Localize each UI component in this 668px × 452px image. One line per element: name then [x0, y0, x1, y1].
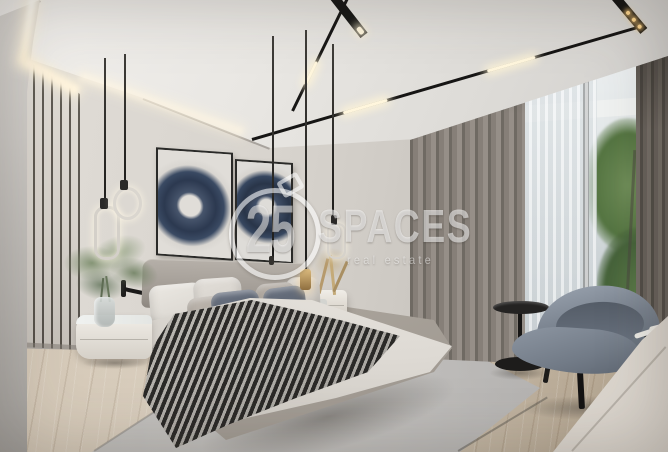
pendant-cord — [272, 36, 274, 260]
artwork-swirl — [158, 149, 231, 258]
led-spot — [631, 17, 637, 23]
led-spot — [356, 26, 365, 35]
artwork-frame-left — [156, 147, 233, 260]
oval-ring-pendant-right — [327, 223, 346, 259]
artwork-frame-right — [235, 159, 293, 264]
led-spot — [625, 10, 631, 16]
pendant-cord-tip — [269, 256, 274, 265]
bedroom-photo: 25 SPACES real estate — [0, 0, 668, 452]
gold-drop-pendant — [300, 269, 311, 290]
pendant-cord — [104, 58, 106, 208]
pendant-cap — [100, 198, 108, 209]
slat-wall — [26, 58, 82, 350]
artwork-swirl — [237, 161, 291, 262]
ring-pendant — [113, 187, 142, 220]
drawer-seam — [80, 339, 148, 340]
side-table-top — [493, 301, 549, 314]
pendant-cap — [120, 180, 128, 190]
pendant-cord — [124, 54, 126, 189]
pendant-cap — [331, 215, 337, 225]
pendant-cord — [332, 44, 334, 224]
pendant-cord — [305, 30, 307, 270]
glass-vase — [94, 297, 115, 327]
led-spot — [637, 24, 643, 30]
